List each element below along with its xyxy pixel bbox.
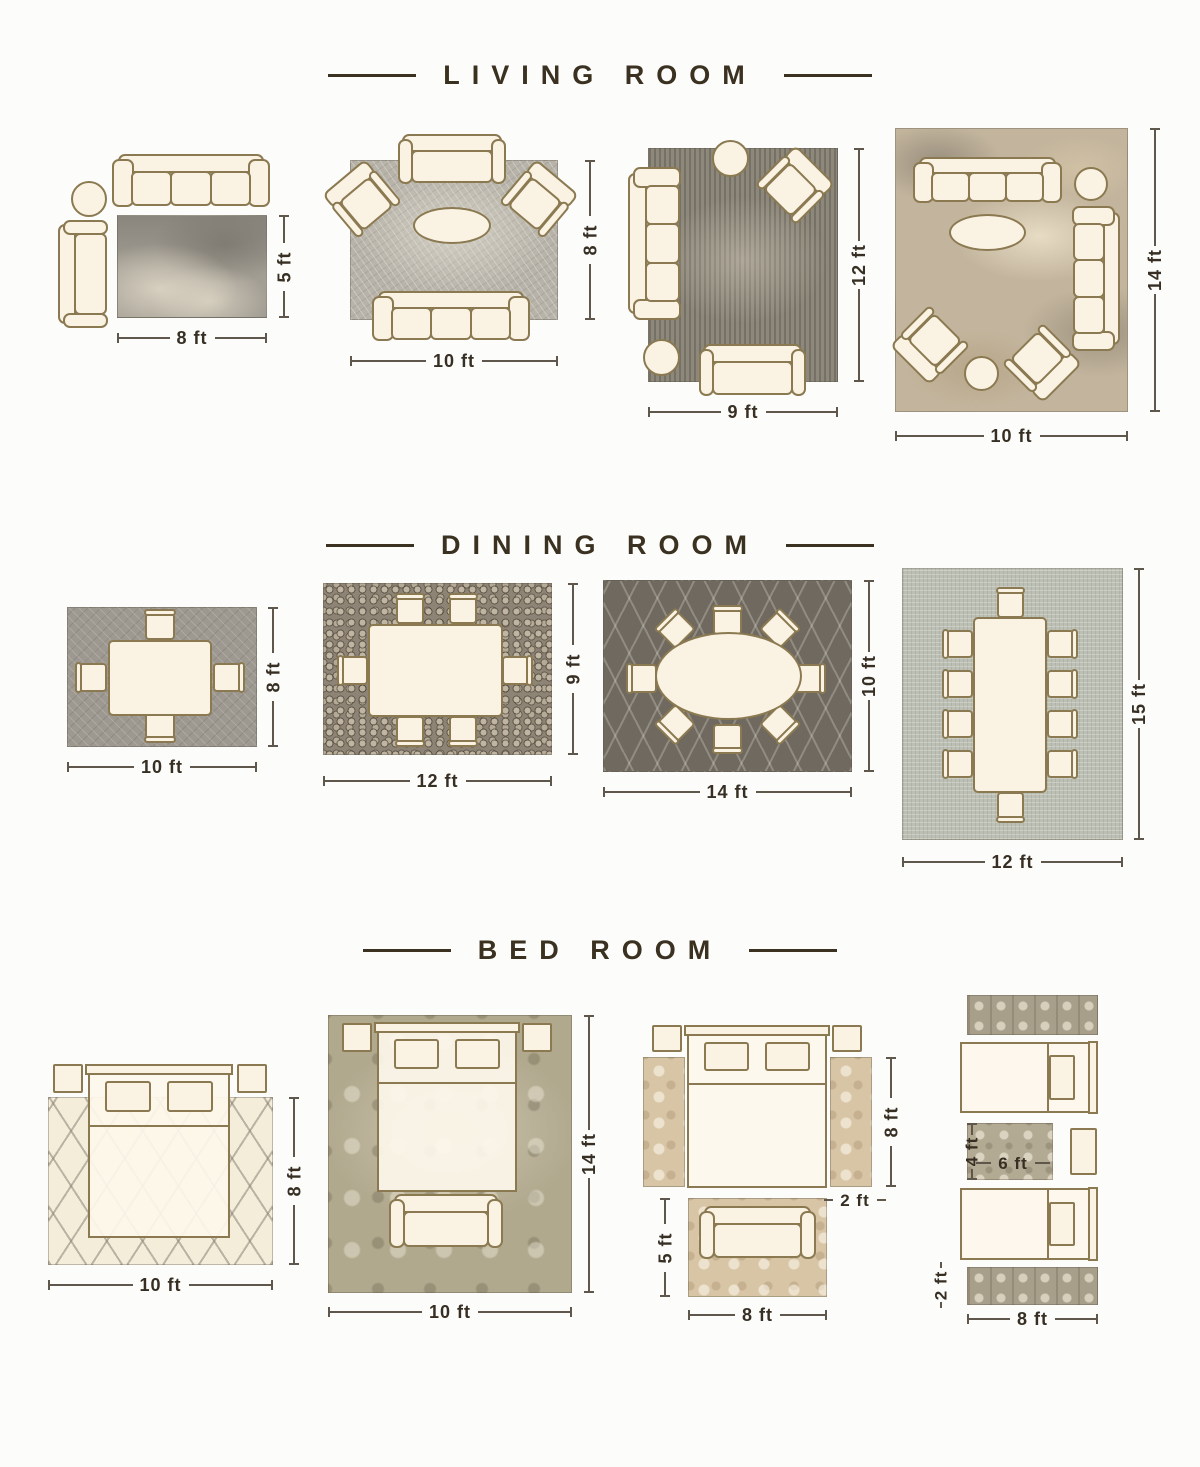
- oval-dining-table: [655, 632, 802, 720]
- width-dimension: 10 ft: [328, 1301, 572, 1323]
- dining-chair: [946, 710, 973, 738]
- twin-bed: [960, 1042, 1098, 1113]
- pillow: [704, 1042, 749, 1071]
- dining-chair: [946, 630, 973, 658]
- dining-chair: [1047, 630, 1074, 658]
- height-dimension: 8 ft: [281, 1097, 307, 1265]
- height-dimension: 8 ft: [577, 160, 603, 320]
- width-dimension: 8 ft: [117, 327, 267, 349]
- dining-chair: [213, 663, 241, 692]
- height-dimension: 14 ft: [1142, 128, 1168, 412]
- three-seat-sofa: [112, 154, 270, 207]
- loveseat: [58, 220, 108, 328]
- nightstand: [652, 1025, 682, 1052]
- bench-loveseat: [699, 1206, 816, 1259]
- foot-rug-height-dimension: 5 ft: [652, 1198, 678, 1297]
- nightstand: [522, 1023, 552, 1052]
- three-seat-sofa: [913, 157, 1062, 203]
- dimension-label: 5 ft: [275, 251, 293, 282]
- title-rule-right: [786, 544, 874, 547]
- dining-chair: [502, 656, 529, 685]
- dining-chair: [713, 724, 742, 750]
- runner-length-dimension: 8 ft: [967, 1308, 1098, 1330]
- bed: [88, 1064, 230, 1238]
- height-dimension: 5 ft: [271, 215, 297, 318]
- nightstand: [832, 1025, 862, 1052]
- pillow: [765, 1042, 810, 1071]
- round-side-table: [71, 181, 107, 217]
- width-dimension: 10 ft: [350, 350, 558, 372]
- round-side-table: [712, 140, 749, 177]
- dining-chair: [1047, 710, 1074, 738]
- dining-chair: [79, 663, 107, 692]
- pillow: [1049, 1202, 1075, 1247]
- title-rule-left: [326, 544, 414, 547]
- height-dimension: 9 ft: [560, 583, 586, 755]
- dining-chair: [145, 613, 175, 640]
- round-side-table: [1074, 167, 1108, 201]
- dining-table: [108, 640, 212, 716]
- width-dimension: 9 ft: [648, 401, 838, 423]
- middle-rug-width-dimension: 6 ft: [976, 1152, 1050, 1174]
- three-seat-sofa: [372, 291, 530, 341]
- height-dimension: 10 ft: [856, 580, 882, 772]
- width-dimension: 14 ft: [603, 781, 852, 803]
- dining-chair: [997, 792, 1024, 819]
- section-heading: BED ROOM: [478, 935, 723, 966]
- twin-bed: [960, 1188, 1098, 1260]
- three-seat-sofa: [628, 167, 681, 320]
- title-rule-right: [784, 74, 872, 77]
- dining-chair: [145, 712, 175, 739]
- nightstand: [1070, 1128, 1097, 1175]
- width-dimension: 10 ft: [895, 425, 1128, 447]
- bench-loveseat: [389, 1194, 503, 1248]
- dining-chair: [630, 664, 657, 693]
- dining-chair: [396, 597, 424, 624]
- height-dimension: 8 ft: [260, 607, 286, 747]
- dining-chair: [997, 591, 1024, 618]
- pillow: [1049, 1055, 1075, 1099]
- runner-width-dimension: 2 ft: [824, 1189, 886, 1211]
- runner-rug: [830, 1057, 872, 1187]
- section-title-bed-room: BED ROOM: [0, 935, 1200, 966]
- section-title-living-room: LIVING ROOM: [0, 60, 1200, 91]
- runner-length-dimension: 8 ft: [878, 1057, 904, 1187]
- three-seat-sofa: [1072, 206, 1120, 351]
- width-dimension: 12 ft: [902, 851, 1123, 873]
- height-dimension: 15 ft: [1126, 568, 1152, 840]
- runner-rug: [967, 995, 1098, 1035]
- title-rule-left: [328, 74, 416, 77]
- nightstand: [53, 1064, 83, 1093]
- nightstand: [342, 1023, 372, 1052]
- runner-rug: [967, 1267, 1098, 1305]
- dining-chair: [449, 716, 477, 743]
- runner-width-dimension: 2 ft: [928, 1262, 954, 1308]
- width-dimension: 12 ft: [323, 770, 552, 792]
- oval-coffee-table: [949, 214, 1026, 251]
- section-heading: DINING ROOM: [441, 530, 759, 561]
- foot-rug-width-dimension: 8 ft: [688, 1304, 827, 1326]
- dining-chair: [1047, 750, 1074, 778]
- height-dimension: 12 ft: [846, 148, 872, 382]
- rug-size-guide: LIVING ROOM 8 ft 5 ft 8 ft: [0, 0, 1200, 1467]
- pillow: [167, 1081, 213, 1112]
- title-rule-right: [749, 949, 837, 952]
- dining-chair: [396, 716, 424, 743]
- width-dimension: 10 ft: [67, 756, 257, 778]
- section-title-dining-room: DINING ROOM: [0, 530, 1200, 561]
- dining-chair: [946, 670, 973, 698]
- bed: [687, 1025, 827, 1188]
- dining-chair: [341, 656, 368, 685]
- oval-coffee-table: [413, 207, 491, 244]
- pillow: [105, 1081, 151, 1112]
- dining-table: [368, 624, 503, 717]
- runner-rug: [643, 1057, 685, 1187]
- pillow: [394, 1039, 439, 1069]
- dining-chair: [1047, 670, 1074, 698]
- loveseat: [699, 344, 806, 396]
- nightstand: [237, 1064, 267, 1093]
- bed: [377, 1022, 517, 1192]
- loveseat: [398, 134, 506, 184]
- pillow: [455, 1039, 500, 1069]
- round-ottoman: [643, 339, 680, 376]
- section-heading: LIVING ROOM: [443, 60, 757, 91]
- dining-chair: [946, 750, 973, 778]
- round-ottoman: [964, 356, 999, 391]
- rug-8x5: [117, 215, 267, 318]
- dining-chair: [449, 597, 477, 624]
- width-dimension: 10 ft: [48, 1274, 273, 1296]
- title-rule-left: [363, 949, 451, 952]
- dimension-label: 8 ft: [170, 329, 215, 347]
- dining-table: [973, 617, 1047, 793]
- height-dimension: 14 ft: [576, 1015, 602, 1293]
